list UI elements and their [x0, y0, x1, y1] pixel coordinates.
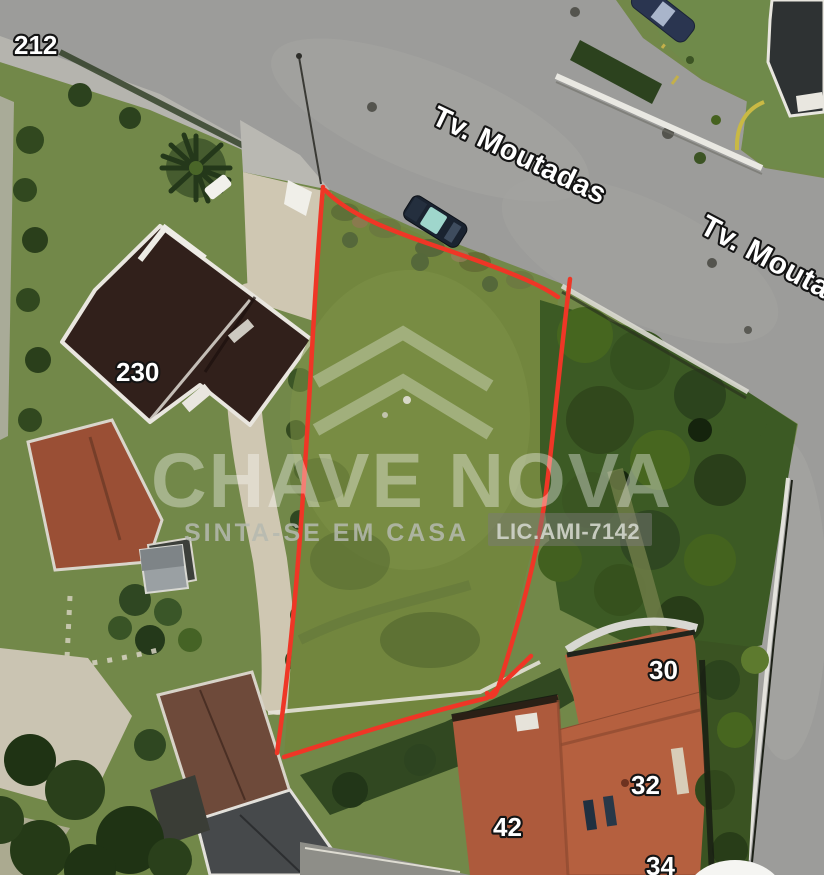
watermark-license: LIC.AMI-7142: [496, 519, 640, 544]
satellite-map-view: 212 230 30 32 42 34 Tv. Moutadas Tv. Mou…: [0, 0, 824, 875]
house-number-230: 230: [116, 357, 159, 387]
watermark-tagline: SINTA-SE EM CASA: [184, 519, 469, 547]
utility-pole: [296, 53, 302, 59]
chimney: [515, 713, 539, 732]
house-number-30: 30: [649, 655, 678, 685]
house-number-42: 42: [493, 812, 522, 842]
house-number-32: 32: [631, 770, 660, 800]
house-number-34: 34: [646, 851, 675, 875]
house-number-212: 212: [14, 30, 57, 60]
house-42-roof: [452, 695, 568, 875]
watermark-brand: CHAVE NOVA: [151, 438, 673, 524]
